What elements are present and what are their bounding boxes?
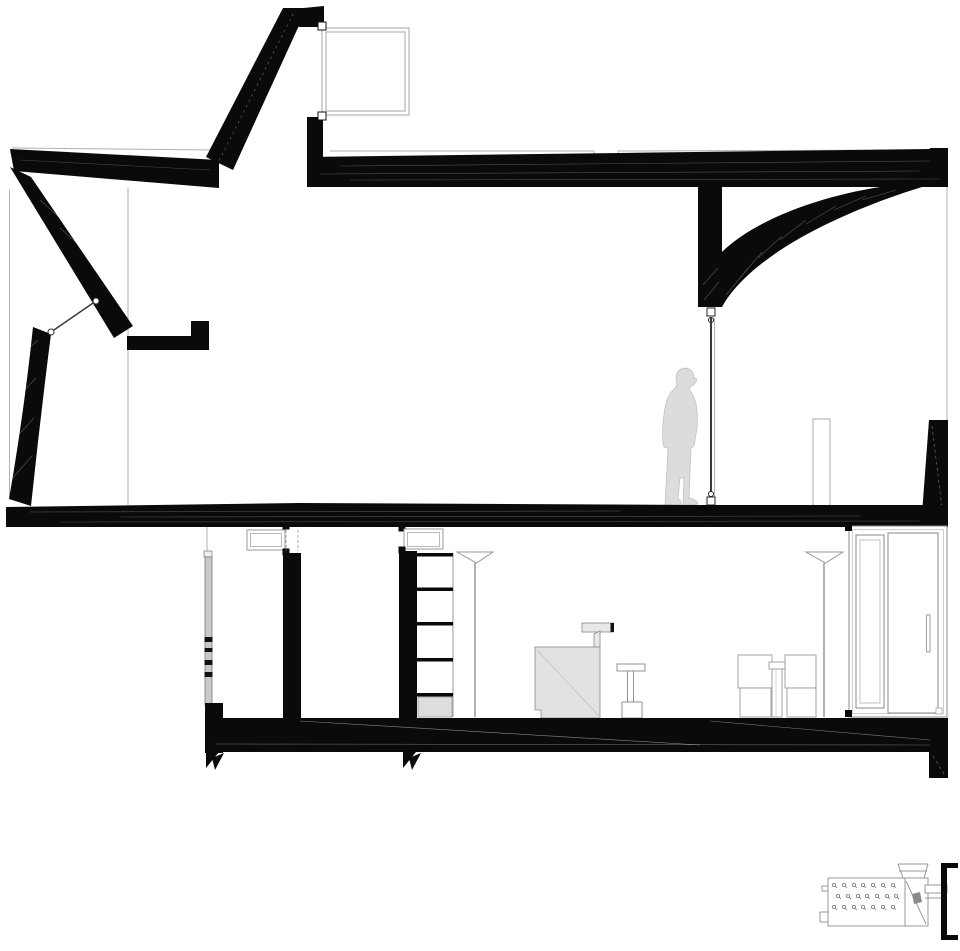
hopper — [898, 864, 928, 878]
basement-wall-left — [283, 553, 301, 720]
basement-structure — [247, 523, 443, 721]
ledge-bracket — [127, 321, 209, 350]
left-roof-hairline — [12, 148, 214, 150]
column-haunch-assembly — [698, 186, 922, 505]
flue-bracket — [941, 863, 958, 940]
storage-boxes — [738, 655, 816, 717]
rod-anchor-top — [707, 308, 715, 316]
foundation-pier — [929, 752, 948, 778]
upper-diagonal-wall — [10, 167, 133, 338]
break-marks — [206, 752, 421, 770]
sloped-chimney-wall — [206, 8, 307, 170]
human-figure — [663, 368, 699, 506]
desk-lamp-stem — [594, 631, 600, 647]
architectural-section-drawing — [0, 0, 960, 951]
lamp-shade — [806, 552, 843, 563]
skylight-window — [318, 22, 409, 120]
stool-base — [622, 702, 642, 718]
hanging-column — [698, 186, 722, 307]
wardrobe-handle — [927, 615, 931, 652]
skylight-joint-top — [318, 22, 326, 30]
equipment-casing — [828, 878, 928, 926]
desk-lamp-cap — [611, 623, 615, 632]
roof-step — [307, 117, 323, 157]
stool-seat — [617, 664, 645, 671]
main-floor-slab — [6, 503, 948, 527]
roof-structure — [10, 6, 948, 188]
ceiling-cabinet-right — [404, 529, 443, 549]
floor-lamp-left — [457, 552, 493, 717]
rod-anchor-bottom — [707, 497, 715, 505]
left-wall-assembly — [9, 167, 209, 506]
skylight-joint-bottom — [318, 112, 326, 120]
wardrobe-door-right — [888, 533, 938, 713]
leaning-left-wall — [9, 327, 51, 506]
section-canvas — [0, 0, 960, 951]
desk-with-lamp — [535, 623, 614, 718]
left-roof-slab — [10, 149, 219, 188]
tie-cable — [51, 301, 96, 332]
pilaster-outline — [813, 419, 830, 507]
curved-haunch — [722, 187, 922, 307]
bookshelf — [417, 553, 453, 717]
cable-pin-left — [48, 329, 54, 335]
basement-wall-right — [399, 551, 417, 720]
basement-floor-slab — [205, 718, 948, 778]
shelf-base-drawer — [418, 697, 452, 717]
right-roof-slab — [307, 148, 948, 187]
stool-stem — [628, 671, 634, 702]
ceiling-cabinet-left — [247, 530, 285, 550]
cable-pin-right — [93, 298, 99, 304]
desk-lamp-head — [582, 623, 613, 632]
stool — [617, 664, 645, 718]
equipment-detail — [820, 863, 958, 940]
wardrobe — [845, 524, 947, 717]
roof-end-lip — [930, 148, 948, 158]
lamp-shade — [457, 552, 493, 563]
